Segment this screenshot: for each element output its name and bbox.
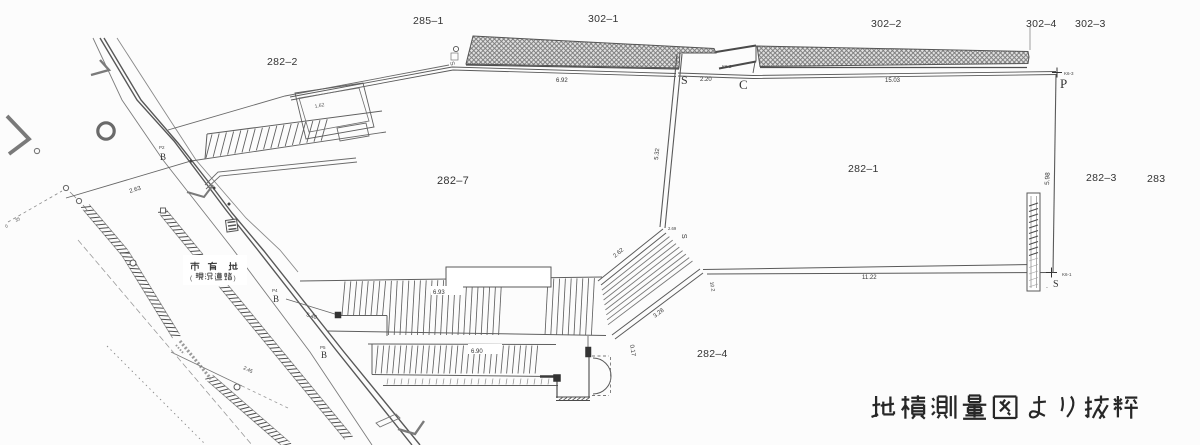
svg-text:K6-2: K6-2	[722, 64, 732, 69]
svg-text:2.69: 2.69	[668, 226, 677, 231]
svg-text:302–2: 302–2	[871, 18, 902, 30]
svg-text:6.90: 6.90	[471, 349, 483, 355]
svg-text:11.22: 11.22	[862, 275, 877, 281]
svg-text:S: S	[681, 73, 688, 87]
svg-text:6.92: 6.92	[556, 78, 568, 84]
svg-text:5.32: 5.32	[654, 147, 661, 160]
svg-text:B: B	[273, 294, 279, 304]
svg-text:): )	[234, 275, 236, 282]
svg-text:B: B	[160, 152, 166, 162]
svg-text:P5: P5	[320, 345, 326, 350]
svg-text:6.93: 6.93	[433, 290, 445, 296]
svg-text:.: .	[1046, 283, 1048, 290]
svg-text:P: P	[1060, 76, 1067, 91]
svg-text:S: S	[1053, 279, 1059, 290]
svg-text:2.20: 2.20	[700, 77, 712, 83]
svg-text:K6-1: K6-1	[1062, 272, 1072, 277]
svg-text:282–1: 282–1	[848, 163, 879, 175]
svg-text:283: 283	[1147, 173, 1165, 185]
svg-text:302–3: 302–3	[1075, 18, 1106, 30]
svg-text:282–3: 282–3	[1086, 172, 1117, 184]
svg-text:15.03: 15.03	[885, 78, 901, 84]
svg-text:285–1: 285–1	[413, 15, 444, 27]
svg-text:S: S	[680, 234, 687, 239]
svg-text:302–1: 302–1	[588, 13, 619, 25]
svg-text:302–4: 302–4	[1026, 18, 1057, 30]
svg-text:C: C	[739, 77, 748, 92]
svg-text:5.98: 5.98	[1044, 172, 1052, 185]
svg-text:B: B	[321, 350, 327, 360]
svg-text:282–2: 282–2	[267, 56, 298, 68]
svg-text:P4: P4	[272, 288, 278, 293]
svg-text:P2: P2	[159, 145, 165, 150]
svg-text:282–4: 282–4	[697, 348, 728, 360]
svg-text:282–7: 282–7	[437, 175, 469, 187]
